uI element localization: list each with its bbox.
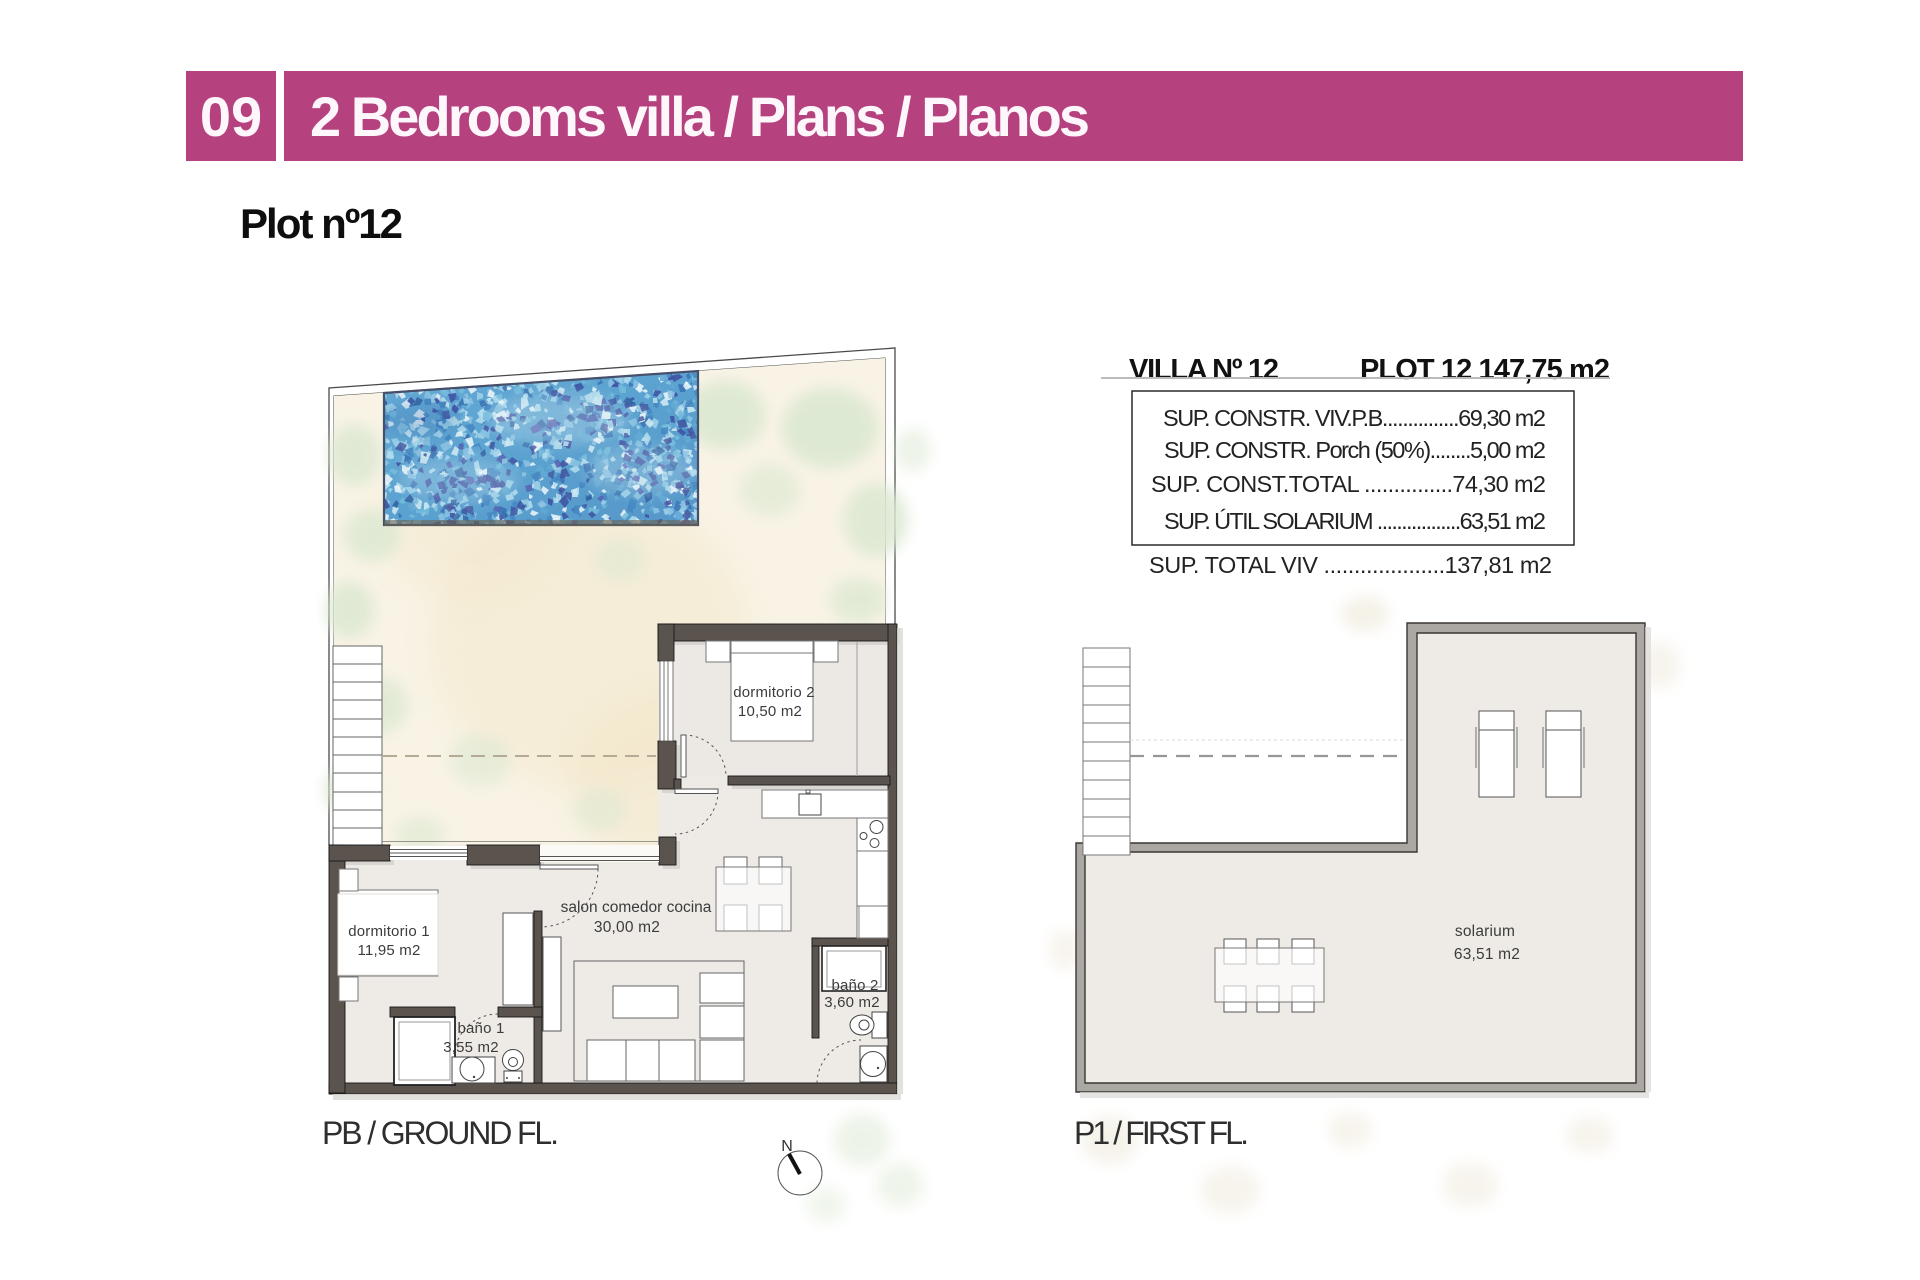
svg-text:10,50 m2: 10,50 m2 xyxy=(738,703,802,720)
svg-text:63,51 m2: 63,51 m2 xyxy=(1454,946,1520,963)
svg-text:SUP. CONSTR. VIV.P.B..........: SUP. CONSTR. VIV.P.B...............69,30… xyxy=(1163,405,1546,431)
svg-text:3,55 m2: 3,55 m2 xyxy=(443,1039,499,1056)
svg-text:PLOT 12 147,75 m2: PLOT 12 147,75 m2 xyxy=(1360,354,1610,386)
svg-text:VILLA Nº 12: VILLA Nº 12 xyxy=(1129,354,1279,386)
svg-text:09: 09 xyxy=(200,85,262,148)
svg-text:11,95 m2: 11,95 m2 xyxy=(357,942,420,959)
svg-text:3,60 m2: 3,60 m2 xyxy=(824,994,880,1011)
svg-text:baño 2: baño 2 xyxy=(831,977,878,994)
svg-text:N: N xyxy=(781,1138,793,1155)
svg-text:salon comedor cocina: salon comedor cocina xyxy=(561,899,712,916)
svg-text:2 Bedrooms villa / Plans / Pla: 2 Bedrooms villa / Plans / Planos xyxy=(310,85,1090,148)
svg-text:solarium: solarium xyxy=(1455,923,1515,940)
svg-text:dormitorio 1: dormitorio 1 xyxy=(348,923,430,940)
svg-text:PB / GROUND FL.: PB / GROUND FL. xyxy=(322,1115,559,1151)
svg-text:SUP. TOTAL VIV ...............: SUP. TOTAL VIV ....................137,8… xyxy=(1149,552,1552,578)
svg-text:30,00 m2: 30,00 m2 xyxy=(594,919,660,936)
svg-text:Plot nº12: Plot nº12 xyxy=(240,200,403,247)
svg-text:SUP. CONST.TOTAL .............: SUP. CONST.TOTAL ...............74,30 m2 xyxy=(1151,471,1546,497)
svg-text:dormitorio 2: dormitorio 2 xyxy=(733,684,815,701)
svg-text:baño 1: baño 1 xyxy=(457,1020,504,1037)
svg-text:SUP. CONSTR. Porch (50%)......: SUP. CONSTR. Porch (50%)........5,00 m2 xyxy=(1164,437,1546,463)
svg-text:P1 / FIRST FL.: P1 / FIRST FL. xyxy=(1074,1115,1249,1151)
svg-text:SUP. ÚTIL SOLARIUM ...........: SUP. ÚTIL SOLARIUM .................63,5… xyxy=(1164,508,1546,534)
